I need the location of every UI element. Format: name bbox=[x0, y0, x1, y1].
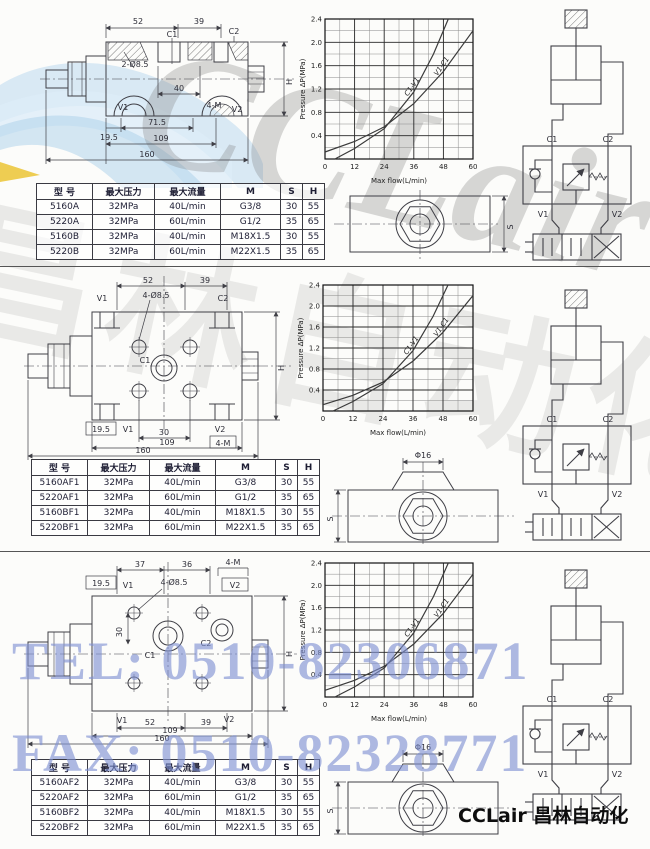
dim-label: H bbox=[277, 365, 286, 371]
x-tick-label: 36 bbox=[409, 163, 418, 171]
y-tick-label: 0.8 bbox=[311, 109, 322, 117]
table-cell: 35 bbox=[281, 245, 303, 260]
dim-label: 52 bbox=[143, 276, 153, 285]
table-cell: M18X1.5 bbox=[216, 806, 276, 821]
table-cell: 30 bbox=[276, 776, 298, 791]
side-view-dimension-drawing: 52 39 C1 C2 2-Ø8.5 40 V1 4-M V2 19.5 71.… bbox=[38, 8, 308, 182]
x-tick-label: 0 bbox=[323, 701, 327, 709]
section-divider bbox=[0, 266, 650, 267]
table-cell: 65 bbox=[298, 821, 320, 836]
x-axis-label: Max flow(L/min) bbox=[371, 715, 427, 723]
column-header: H bbox=[298, 760, 320, 776]
dim-label: 19.5 bbox=[92, 579, 110, 588]
x-tick-label: 60 bbox=[469, 701, 478, 709]
table-cell: 5160BF1 bbox=[32, 506, 88, 521]
port-label: V2 bbox=[612, 210, 623, 219]
port-label: C1 bbox=[140, 356, 151, 365]
x-tick-label: 24 bbox=[380, 163, 389, 171]
dim-label: 40 bbox=[174, 84, 184, 93]
table-cell: G3/8 bbox=[216, 776, 276, 791]
thread-callout: 4-M bbox=[216, 439, 231, 448]
port-label: V2 bbox=[215, 425, 226, 434]
x-tick-label: 12 bbox=[350, 701, 359, 709]
table-cell: 5160BF2 bbox=[32, 806, 88, 821]
y-tick-label: 1.6 bbox=[311, 62, 323, 70]
x-axis-label: Max flow(L/min) bbox=[371, 177, 427, 185]
dim-label: 52 bbox=[133, 17, 143, 26]
table-row: 5160AF232MPa40L/minG3/83055 bbox=[32, 776, 320, 791]
table-cell: 5220AF1 bbox=[32, 491, 88, 506]
table-cell: 30 bbox=[276, 806, 298, 821]
y-axis-label: Pressure ΔP(MPa) bbox=[297, 317, 305, 378]
table-cell: 30 bbox=[281, 200, 303, 215]
table-cell: 65 bbox=[303, 245, 325, 260]
port-label: V2 bbox=[230, 581, 241, 590]
table-cell: 32MPa bbox=[93, 245, 155, 260]
table-cell: 35 bbox=[276, 791, 298, 806]
column-header: 最大流量 bbox=[155, 184, 221, 200]
hex-nut-top-view: S bbox=[332, 188, 524, 264]
dim-label: 160 bbox=[154, 734, 169, 743]
y-tick-label: 1.2 bbox=[311, 627, 322, 635]
column-header: 最大流量 bbox=[150, 460, 216, 476]
table-header-row: 型 号最大压力最大流量MSH bbox=[32, 460, 320, 476]
hydraulic-circuit-schematic: C1 C2 V1 V2 bbox=[505, 566, 645, 824]
dim-label: H bbox=[285, 79, 294, 85]
x-tick-label: 60 bbox=[469, 163, 478, 171]
dim-label: H bbox=[285, 651, 294, 657]
dim-label: 36 bbox=[182, 560, 192, 569]
dim-label: Φ16 bbox=[415, 743, 431, 752]
column-header: H bbox=[298, 460, 320, 476]
table-header-row: 型 号最大压力最大流量MSH bbox=[32, 760, 320, 776]
x-tick-label: 60 bbox=[469, 415, 478, 423]
table-cell: 5220A bbox=[37, 215, 93, 230]
table-cell: G1/2 bbox=[221, 215, 281, 230]
table-cell: 32MPa bbox=[88, 776, 150, 791]
table-cell: 65 bbox=[303, 215, 325, 230]
y-tick-label: 0.4 bbox=[309, 387, 321, 395]
port-label: C2 bbox=[603, 695, 614, 704]
port-label: V2 bbox=[232, 105, 243, 114]
table-cell: 32MPa bbox=[88, 521, 150, 536]
chart-svg: 012243648600.40.81.21.62.02.4C1-V1V1-C1M… bbox=[298, 12, 482, 188]
table-cell: 55 bbox=[298, 476, 320, 491]
table-cell: 60L/min bbox=[155, 215, 221, 230]
table-cell: 55 bbox=[298, 806, 320, 821]
table-row: 5160A32MPa40L/minG3/83055 bbox=[37, 200, 325, 215]
table-header-row: 型 号最大压力最大流量MSH bbox=[37, 184, 325, 200]
table-cell: 35 bbox=[276, 491, 298, 506]
dim-label: S bbox=[326, 516, 335, 521]
table-cell: G3/8 bbox=[216, 476, 276, 491]
y-tick-label: 0.8 bbox=[309, 366, 320, 374]
table-cell: 5220B bbox=[37, 245, 93, 260]
table-cell: 35 bbox=[276, 521, 298, 536]
table-cell: 32MPa bbox=[93, 215, 155, 230]
table-cell: 30 bbox=[276, 476, 298, 491]
table-cell: 35 bbox=[276, 821, 298, 836]
hole-callout: 2-Ø8.5 bbox=[122, 59, 149, 69]
table-cell: M18X1.5 bbox=[216, 506, 276, 521]
dim-label: 39 bbox=[200, 276, 210, 285]
table-cell: 32MPa bbox=[88, 821, 150, 836]
footer-brand: CCLair 昌林自动化 bbox=[458, 801, 628, 828]
column-header: 最大流量 bbox=[150, 760, 216, 776]
x-tick-label: 36 bbox=[409, 415, 418, 423]
table-cell: 5160AF2 bbox=[32, 776, 88, 791]
port-label: V2 bbox=[612, 770, 623, 779]
x-axis-label: Max flow(L/min) bbox=[370, 429, 426, 437]
y-tick-label: 1.6 bbox=[309, 324, 321, 332]
column-header: 最大压力 bbox=[88, 760, 150, 776]
table-cell: 32MPa bbox=[88, 806, 150, 821]
y-tick-label: 2.0 bbox=[311, 582, 322, 590]
table-cell: 5160AF1 bbox=[32, 476, 88, 491]
table-cell: M22X1.5 bbox=[216, 521, 276, 536]
hole-callout: 4-Ø8.5 bbox=[143, 290, 170, 300]
y-tick-label: 2.4 bbox=[309, 282, 321, 290]
y-tick-label: 2.0 bbox=[311, 39, 322, 47]
x-tick-label: 36 bbox=[409, 701, 418, 709]
x-tick-label: 24 bbox=[380, 701, 389, 709]
y-tick-label: 2.4 bbox=[311, 560, 323, 568]
port-label: V1 bbox=[97, 294, 108, 303]
y-axis-label: Pressure ΔP(MPa) bbox=[299, 58, 307, 119]
table-cell: 40L/min bbox=[155, 230, 221, 245]
dim-label: 37 bbox=[135, 560, 145, 569]
table-cell: 55 bbox=[303, 200, 325, 215]
column-header: M bbox=[216, 460, 276, 476]
table-cell: 32MPa bbox=[88, 791, 150, 806]
x-tick-label: 24 bbox=[379, 415, 388, 423]
table-cell: 5220AF2 bbox=[32, 791, 88, 806]
port-label: C1 bbox=[547, 695, 558, 704]
table-cell: 5220BF1 bbox=[32, 521, 88, 536]
column-header: S bbox=[276, 760, 298, 776]
spec-table: 型 号最大压力最大流量MSH5160AF232MPa40L/minG3/8305… bbox=[31, 759, 320, 836]
column-header: 最大压力 bbox=[88, 460, 150, 476]
dim-label: 19.5 bbox=[92, 425, 110, 434]
table-cell: 32MPa bbox=[93, 230, 155, 245]
thread-callout: 4-M bbox=[226, 558, 241, 567]
dim-label: S bbox=[326, 808, 335, 813]
column-header: 型 号 bbox=[37, 184, 93, 200]
table-cell: 55 bbox=[303, 230, 325, 245]
port-label: V2 bbox=[612, 490, 623, 499]
performance-chart: 012243648600.40.81.21.62.02.4C1-V1V1-C1M… bbox=[298, 556, 482, 726]
y-tick-label: 2.0 bbox=[309, 303, 320, 311]
table-row: 5220BF132MPa60L/minM22X1.53565 bbox=[32, 521, 320, 536]
table-cell: 32MPa bbox=[88, 491, 150, 506]
datasheet-page: CCLair 昌林自动化 bbox=[0, 0, 650, 849]
port-label: C2 bbox=[218, 294, 229, 303]
hex-nut-top-view: Φ16 S bbox=[328, 446, 523, 548]
x-tick-label: 48 bbox=[439, 415, 448, 423]
port-label: C1 bbox=[547, 135, 558, 144]
port-label: C1 bbox=[145, 651, 156, 660]
table-row: 5220B32MPa60L/minM22X1.53565 bbox=[37, 245, 325, 260]
top-view-dimension-drawing: 52 39 V1 4-Ø8.5 C2 C1 19.5 V1 30 V2 4-M … bbox=[22, 270, 307, 462]
column-header: M bbox=[216, 760, 276, 776]
thread-callout: 4-M bbox=[207, 101, 222, 110]
table-cell: 60L/min bbox=[150, 791, 216, 806]
table-row: 5220AF132MPa60L/minG1/23565 bbox=[32, 491, 320, 506]
table-cell: 65 bbox=[298, 521, 320, 536]
y-tick-label: 1.2 bbox=[309, 345, 320, 353]
table-cell: 30 bbox=[276, 506, 298, 521]
table-row: 5160BF232MPa40L/minM18X1.53055 bbox=[32, 806, 320, 821]
performance-chart: 012243648600.40.81.21.62.02.4C1-V1V1-C1M… bbox=[298, 12, 482, 188]
table-cell: 5160B bbox=[37, 230, 93, 245]
table-cell: 30 bbox=[281, 230, 303, 245]
table-cell: 60L/min bbox=[150, 821, 216, 836]
table-cell: G3/8 bbox=[221, 200, 281, 215]
table-cell: 40L/min bbox=[150, 506, 216, 521]
table-cell: 32MPa bbox=[93, 200, 155, 215]
y-tick-label: 1.2 bbox=[311, 86, 322, 94]
dim-label: 30 bbox=[159, 428, 169, 437]
column-header: S bbox=[276, 460, 298, 476]
table-row: 5160BF132MPa40L/minM18X1.53055 bbox=[32, 506, 320, 521]
top-view-dimension-drawing: 37 36 4-M 19.5 V1 4-Ø8.5 V2 C1 C2 30 V1 … bbox=[22, 556, 307, 750]
y-axis-label: Pressure ΔP(MPa) bbox=[299, 599, 307, 660]
port-label: C2 bbox=[201, 639, 212, 648]
x-tick-label: 48 bbox=[439, 163, 448, 171]
hydraulic-circuit-schematic: C1 C2 V1 V2 bbox=[505, 286, 645, 544]
port-label: V1 bbox=[117, 716, 128, 725]
chart-svg: 012243648600.40.81.21.62.02.4C1-V1V1-C1M… bbox=[298, 556, 482, 726]
performance-chart: 012243648600.40.81.21.62.02.4C1-V1V1-C1M… bbox=[296, 278, 482, 440]
table-cell: 5160A bbox=[37, 200, 93, 215]
dim-label: 109 bbox=[153, 134, 168, 143]
table-cell: 32MPa bbox=[88, 476, 150, 491]
table-row: 5160B32MPa40L/minM18X1.53055 bbox=[37, 230, 325, 245]
dim-label: 160 bbox=[135, 446, 150, 455]
port-label: V1 bbox=[538, 490, 549, 499]
x-tick-label: 12 bbox=[349, 415, 358, 423]
table-row: 5220A32MPa60L/minG1/23565 bbox=[37, 215, 325, 230]
y-tick-label: 0.4 bbox=[311, 132, 323, 140]
port-label: C1 bbox=[167, 30, 178, 39]
dim-label: 109 bbox=[159, 438, 174, 447]
port-label: V2 bbox=[224, 715, 235, 724]
table-cell: M22X1.5 bbox=[221, 245, 281, 260]
port-label: C1 bbox=[547, 415, 558, 424]
table-cell: G1/2 bbox=[216, 791, 276, 806]
column-header: 型 号 bbox=[32, 460, 88, 476]
spec-table: 型 号最大压力最大流量MSH5160AF132MPa40L/minG3/8305… bbox=[31, 459, 320, 536]
spec-table: 型 号最大压力最大流量MSH5160A32MPa40L/minG3/830555… bbox=[36, 183, 325, 260]
port-label: C2 bbox=[603, 415, 614, 424]
table-cell: 32MPa bbox=[88, 506, 150, 521]
port-label: V1 bbox=[538, 210, 549, 219]
x-tick-label: 48 bbox=[439, 701, 448, 709]
x-tick-label: 0 bbox=[323, 163, 327, 171]
table-cell: 40L/min bbox=[155, 200, 221, 215]
y-tick-label: 1.6 bbox=[311, 604, 323, 612]
table-cell: 60L/min bbox=[155, 245, 221, 260]
table-row: 5160AF132MPa40L/minG3/83055 bbox=[32, 476, 320, 491]
dim-label: 30 bbox=[115, 627, 124, 637]
table-cell: M18X1.5 bbox=[221, 230, 281, 245]
port-label: C2 bbox=[603, 135, 614, 144]
table-cell: 60L/min bbox=[150, 491, 216, 506]
x-tick-label: 12 bbox=[350, 163, 359, 171]
dim-label: 19.5 bbox=[100, 133, 118, 142]
column-header: S bbox=[281, 184, 303, 200]
table-cell: 60L/min bbox=[150, 521, 216, 536]
dim-label: 71.5 bbox=[148, 118, 166, 127]
column-header: 型 号 bbox=[32, 760, 88, 776]
port-label: V1 bbox=[118, 103, 129, 112]
port-label: V1 bbox=[123, 581, 134, 590]
y-tick-label: 2.4 bbox=[311, 16, 323, 24]
table-cell: 65 bbox=[298, 791, 320, 806]
port-label: C2 bbox=[229, 27, 240, 36]
table-row: 5220AF232MPa60L/minG1/23565 bbox=[32, 791, 320, 806]
table-cell: 40L/min bbox=[150, 476, 216, 491]
column-header: H bbox=[303, 184, 325, 200]
table-cell: 55 bbox=[298, 506, 320, 521]
table-cell: 65 bbox=[298, 491, 320, 506]
table-cell: 40L/min bbox=[150, 806, 216, 821]
dim-label: 39 bbox=[201, 718, 211, 727]
hole-callout: 4-Ø8.5 bbox=[161, 577, 188, 587]
hydraulic-circuit-schematic: C1 C2 V1 V2 bbox=[505, 6, 645, 264]
table-cell: 35 bbox=[281, 215, 303, 230]
table-row: 5220BF232MPa60L/minM22X1.53565 bbox=[32, 821, 320, 836]
table-cell: G1/2 bbox=[216, 491, 276, 506]
port-label: V1 bbox=[123, 425, 134, 434]
table-cell: M22X1.5 bbox=[216, 821, 276, 836]
column-header: 最大压力 bbox=[93, 184, 155, 200]
dim-label: 39 bbox=[194, 17, 204, 26]
chart-svg: 012243648600.40.81.21.62.02.4C1-V1V1-C1M… bbox=[296, 278, 482, 440]
section-divider bbox=[0, 551, 650, 552]
dim-label: Φ16 bbox=[415, 451, 431, 460]
column-header: M bbox=[221, 184, 281, 200]
dim-label: 52 bbox=[145, 718, 155, 727]
y-tick-label: 0.8 bbox=[311, 649, 322, 657]
dim-label: 160 bbox=[139, 150, 154, 159]
table-cell: 5220BF2 bbox=[32, 821, 88, 836]
port-label: V1 bbox=[538, 770, 549, 779]
x-tick-label: 0 bbox=[321, 415, 325, 423]
table-cell: 40L/min bbox=[150, 776, 216, 791]
table-cell: 55 bbox=[298, 776, 320, 791]
y-tick-label: 0.4 bbox=[311, 671, 323, 679]
